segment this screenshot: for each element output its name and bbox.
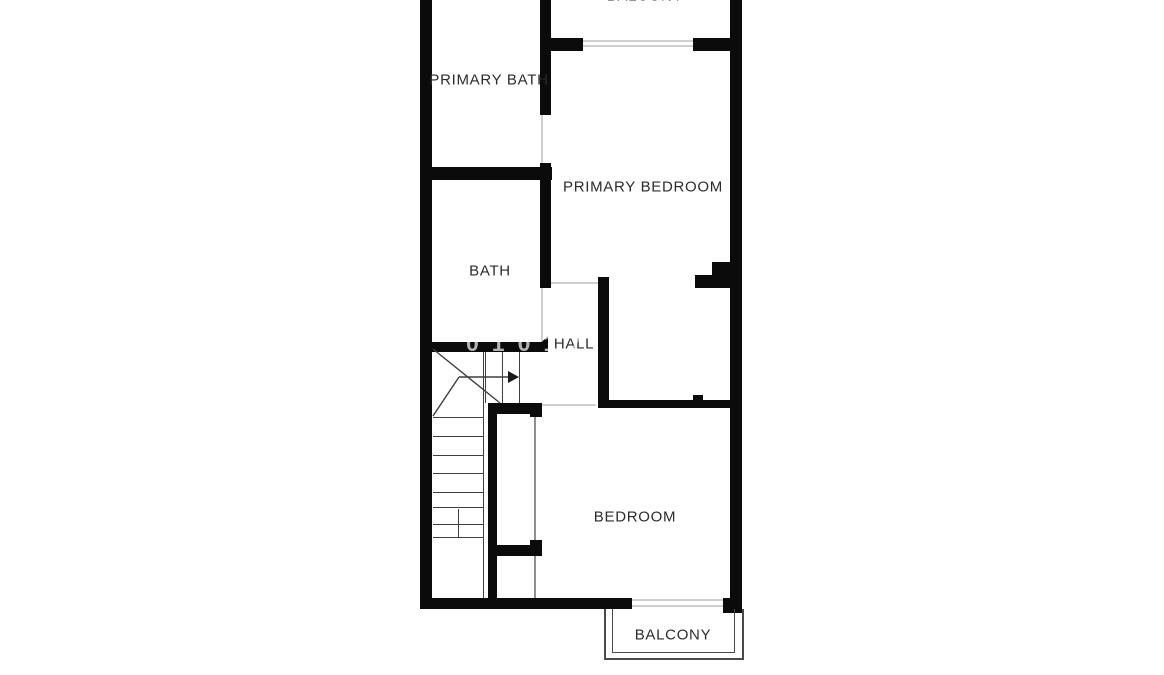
wall-closet-south (488, 545, 530, 556)
floor-plan-canvas: BALCONY PRIMARY BATH PRIMARY BEDROOM BAT… (0, 0, 1164, 675)
stair-tread (433, 507, 483, 508)
primary-bedroom-door-line (551, 282, 598, 284)
room-label-bath: BATH (469, 263, 511, 280)
room-label-primary-bath: PRIMARY BATH (429, 72, 548, 89)
wall-bath-north (420, 167, 552, 180)
bottom-balcony-door-line (632, 605, 723, 607)
bedroom-door-line (542, 404, 596, 406)
stair-tread (433, 436, 483, 437)
wall-bedroom-west (488, 403, 497, 609)
top-balcony-door-line (583, 45, 693, 47)
door-jamb (530, 540, 542, 556)
room-label-balcony-top: BALCONY (607, 0, 684, 5)
wall-right (730, 0, 742, 612)
stair-tread (433, 455, 483, 456)
wall-bath-east (540, 163, 551, 288)
wall-bottom (420, 598, 632, 609)
stair-tread-divider (458, 509, 459, 537)
bottom-balcony-door-line (632, 599, 723, 601)
watermark-text: 01017 (466, 330, 595, 357)
stair-tread (433, 492, 483, 493)
closet-front-line (534, 417, 536, 540)
top-balcony-door-line (583, 40, 693, 42)
door-jamb (693, 395, 703, 401)
wall-top-balcony-right (693, 38, 742, 51)
primary-bath-door-line (541, 115, 543, 163)
stair-tread (433, 473, 483, 474)
stair-tread (433, 537, 483, 538)
wall-left (420, 0, 432, 609)
wall-primary-bath-east (540, 0, 551, 115)
wall-bedroom-north (598, 400, 742, 408)
room-label-bedroom: BEDROOM (594, 509, 676, 526)
chimney-block (695, 275, 712, 288)
room-label-balcony-bottom: BALCONY (635, 627, 712, 644)
wall-hall-east (598, 277, 609, 408)
room-label-primary-bedroom: PRIMARY BEDROOM (563, 179, 723, 196)
closet-front-line (534, 556, 536, 598)
chimney-block (712, 262, 732, 288)
